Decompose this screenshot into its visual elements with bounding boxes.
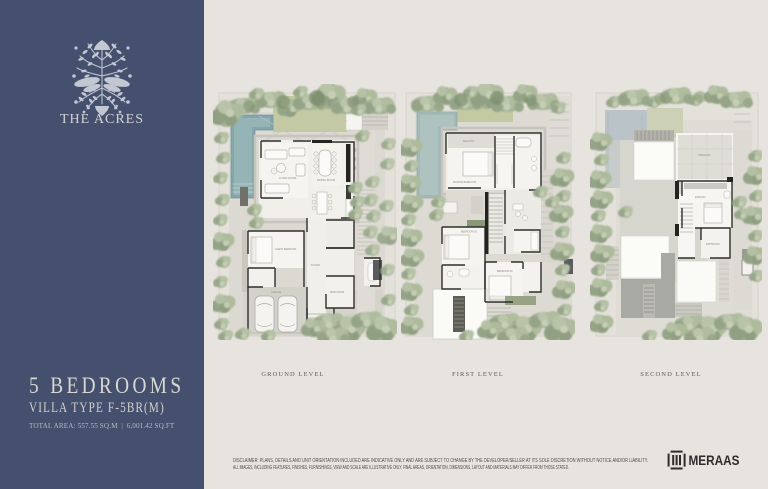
svg-text:LIVING ROOM: LIVING ROOM [279,176,296,180]
svg-text:FOYER: FOYER [311,263,320,267]
svg-text:MASTER BEDROOM: MASTER BEDROOM [453,181,476,184]
svg-text:DINING ROOM: DINING ROOM [317,178,335,182]
svg-text:BEDROOM 03: BEDROOM 03 [461,231,477,234]
svg-text:BALCONY: BALCONY [463,140,475,143]
svg-text:MERAAS: MERAAS [689,452,740,468]
svg-text:MAID ROOM: MAID ROOM [330,291,344,294]
svg-text:TERRACE: TERRACE [698,153,711,157]
svg-text:GARAGE: GARAGE [271,291,282,294]
svg-text:ALL IMAGES, INCLUDING FEATURES: ALL IMAGES, INCLUDING FEATURES, FINISHES… [233,465,569,471]
svg-text:BATHROOM: BATHROOM [706,243,720,246]
svg-text:GUEST BEDROOM: GUEST BEDROOM [275,248,296,251]
svg-text:BEDROOM 02: BEDROOM 02 [497,270,513,273]
svg-text:DISCLAIMER: PLANS, DETAILS AND: DISCLAIMER: PLANS, DETAILS AND UNIT ORIE… [233,458,648,464]
